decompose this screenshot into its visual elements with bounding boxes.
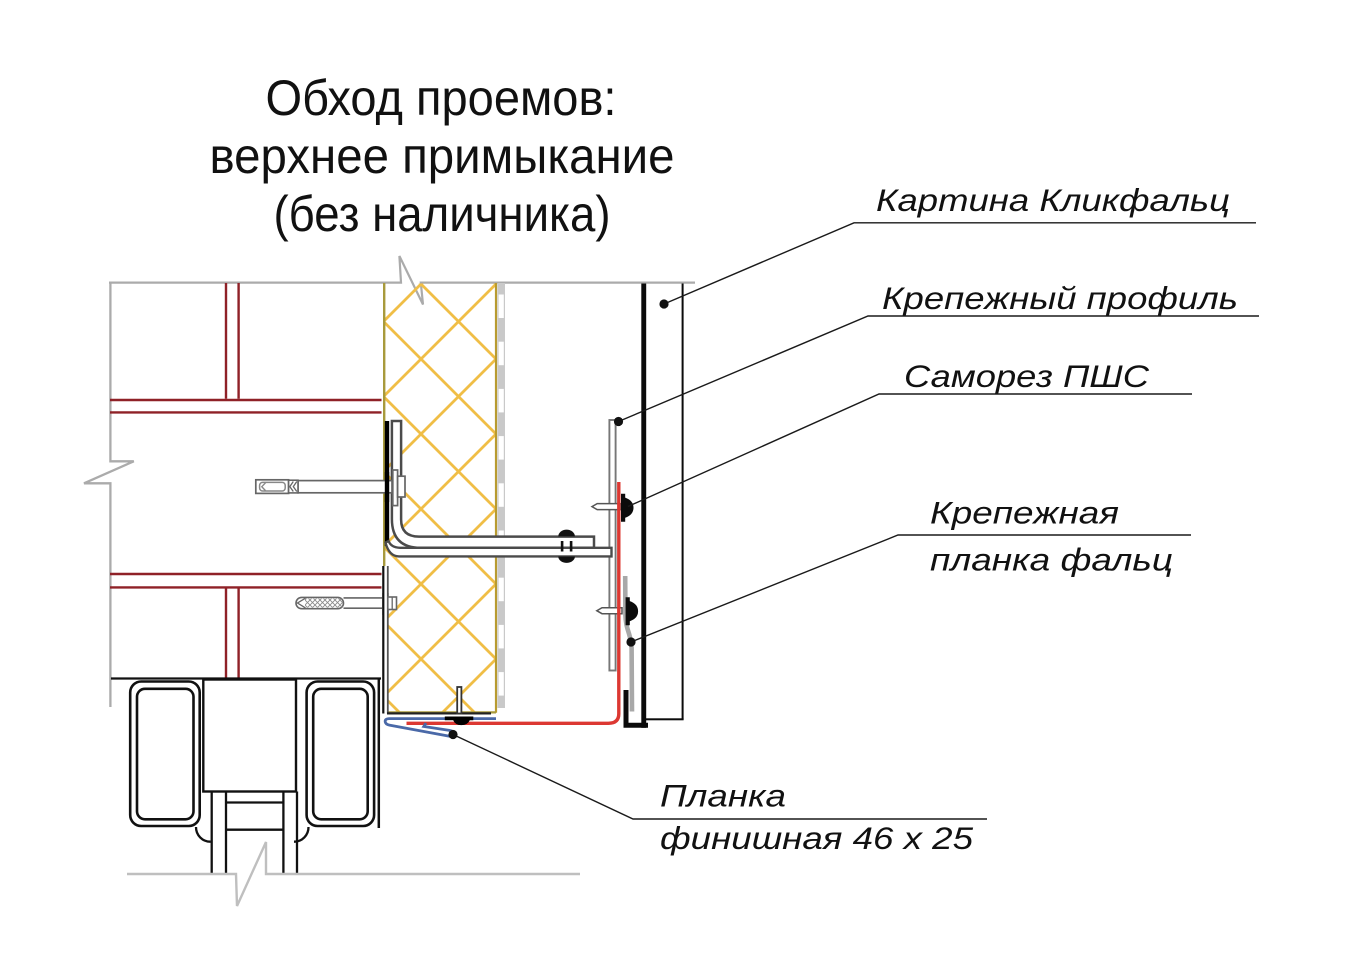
svg-text:финишная 46 x 25: финишная 46 x 25 [660,820,974,856]
svg-text:Обход проемов:: Обход проемов: [266,70,617,126]
svg-text:Картина Кликфальц: Картина Кликфальц [876,182,1230,218]
svg-text:Крепежная: Крепежная [930,495,1119,531]
svg-text:Крепежный профиль: Крепежный профиль [882,280,1238,316]
svg-text:планка фальц: планка фальц [930,542,1173,578]
svg-text:верхнее примыкание: верхнее примыкание [210,128,675,184]
svg-text:(без наличника): (без наличника) [274,186,611,242]
svg-text:Саморез ПШС: Саморез ПШС [904,358,1149,394]
svg-text:Планка: Планка [660,778,786,814]
